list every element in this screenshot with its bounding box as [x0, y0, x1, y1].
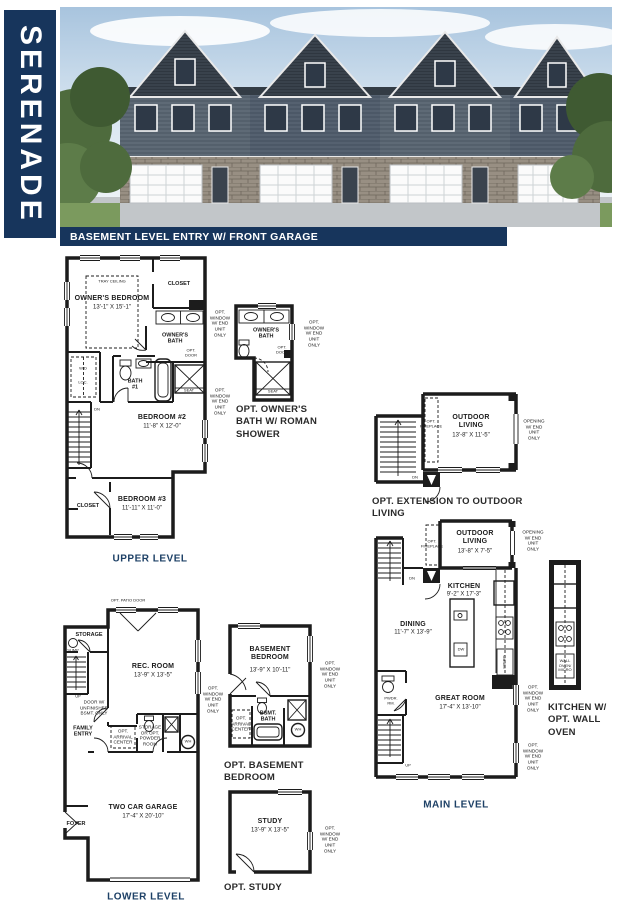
stairs-dn-label: DN	[412, 476, 418, 481]
opt-window-note: OPT. WINDOW W/ END UNIT ONLY	[523, 743, 544, 772]
opt-window-note: OPT. WINDOW W/ END UNIT ONLY	[318, 661, 342, 690]
opt-fireplace-note: OPT. FIREPLACE	[420, 419, 442, 428]
opt-fireplace-outline	[425, 398, 438, 462]
opening-note: OPENING W/ END UNIT ONLY	[522, 530, 543, 553]
rec-room-dims: 13'-9" X 13'-5"	[134, 673, 172, 680]
lower-level-plan: OPT. PATIO DOOR STORAGE SUMP REC. ROOM 1…	[58, 596, 236, 906]
owners-bedroom-dims: 13'-1" X 15'-1"	[93, 305, 131, 312]
opt-door-note: OPT. DOOR	[276, 345, 288, 354]
stairs-down	[380, 420, 416, 476]
powder-room-label: PWDR. RM.	[384, 696, 397, 705]
dining-label: DINING	[400, 621, 426, 629]
lower-level-caption: LOWER LEVEL	[107, 891, 185, 903]
study-label: STUDY	[258, 818, 283, 826]
closet-label: CLOSET	[168, 281, 190, 287]
dishwasher-label: DW	[458, 648, 465, 653]
sump-pump	[69, 639, 78, 648]
powder-toilet	[382, 676, 394, 693]
bedroom2-dims: 11'-8" X 12'-0"	[143, 424, 180, 431]
stairs-up-label: UP	[405, 764, 411, 769]
opt-basement-bedroom-drawing	[222, 618, 354, 780]
stairs-down	[378, 541, 401, 581]
opt-basement-bedroom-plan: BASEMENT BEDROOM 13'-9" X 10'-11" BSMT. …	[222, 618, 354, 780]
vanity	[239, 310, 289, 323]
exterior-rendering	[60, 7, 612, 227]
upper-level-caption: UPPER LEVEL	[113, 553, 188, 565]
plan-title: SERENADE	[13, 25, 47, 224]
bath1-tub	[155, 359, 171, 401]
wall-oven-label: WALL OVEN/ MICRO	[558, 659, 571, 673]
washer-dryer-label: W/D	[79, 367, 87, 372]
storage-powder-note: STORAGE OR OPT. POWDER ROOM	[139, 725, 161, 748]
closet-bedroom3-label: CLOSET	[77, 503, 99, 509]
elevation-banner-label: BASEMENT LEVEL ENTRY W/ FRONT GARAGE	[70, 231, 318, 243]
main-level-plan: OUTDOOR LIVING 13'-8" X 7'-5" OPT. FIREP…	[368, 513, 554, 815]
opt-fireplace-note: OPT. FIREPLACE	[421, 539, 443, 548]
unfinished-bsmt-door-note: DOOR W/ UNFINISHED BSMT. ONLY	[80, 699, 108, 716]
main-level-caption: MAIN LEVEL	[423, 799, 489, 811]
opt-window-note: OPT. WINDOW W/ END UNIT ONLY	[304, 320, 324, 349]
owners-bedroom-label: OWNER'S BEDROOM	[75, 295, 150, 303]
dining-dims: 11'-7" X 13'-9"	[394, 630, 431, 637]
kitchen-island	[450, 599, 474, 667]
opt-arrival-center-note: OPT. ARRIVAL CENTER	[231, 715, 250, 732]
opt-study-caption: OPT. STUDY	[224, 882, 282, 894]
opt-owners-bath-caption: OPT. OWNER'S BATH W/ ROMAN SHOWER	[236, 404, 317, 441]
outdoor-living-label: OUTDOOR LIVING	[456, 530, 493, 546]
bedroom2-label: BEDROOM #2	[138, 414, 186, 422]
toilet	[239, 340, 249, 358]
opt-study-plan: STUDY 13'-9" X 13'-5" OPT. WINDOW W/ END…	[222, 784, 354, 910]
great-room-label: GREAT ROOM	[435, 695, 485, 703]
stairs-up	[378, 719, 401, 757]
stairs-dn-label: DN	[94, 408, 100, 413]
bath1-sink	[136, 359, 151, 368]
bath1-toilet	[120, 360, 131, 380]
opening-note: OPENING W/ END UNIT ONLY	[523, 419, 544, 442]
opt-owners-bath-plan: OWNER'S BATH OPT. DOOR SEAT OPT. WINDOW …	[228, 300, 332, 456]
lower-level-drawing	[58, 596, 236, 906]
storage-label: STORAGE	[75, 632, 102, 638]
bedroom3-dims: 11'-11" X 11'-0"	[122, 506, 162, 513]
kitchen-label: KITCHEN	[448, 583, 481, 591]
bath1-label: BATH #1	[128, 379, 143, 392]
stairs-up	[67, 656, 86, 690]
shower	[165, 717, 178, 732]
basement-bedroom-dims: 13'-9" X 10'-11"	[250, 668, 291, 675]
owners-bath-label: OWNER'S BATH	[162, 333, 188, 346]
microwave-label: MICRO	[503, 655, 508, 668]
townhome-illustration	[60, 7, 612, 227]
opt-wall-oven-caption: KITCHEN W/ OPT. WALL OVEN	[548, 702, 606, 739]
rec-room-label: REC. ROOM	[132, 663, 174, 671]
outdoor-living-dims: 13'-8" X 11'-5"	[452, 433, 489, 440]
wd-loc-label: LOC.	[78, 381, 87, 386]
stairs-down	[67, 410, 91, 465]
water-heater-label: WH	[295, 728, 302, 733]
upper-level-plan: TRAY CEILING OWNER'S BEDROOM 13'-1" X 15…	[58, 252, 236, 568]
sump-label: SUMP	[67, 649, 79, 654]
opt-door-note: OPT. DOOR	[185, 348, 197, 357]
foyer-label: FOYER	[67, 821, 86, 827]
tub	[254, 724, 282, 740]
outdoor-living-dims: 13'-8" X 7'-5"	[458, 549, 493, 556]
opt-arrival-center-note: OPT. ARRIVAL CENTER	[113, 728, 132, 745]
garage-label: TWO CAR GARAGE	[109, 804, 178, 812]
opt-window-note: OPT. WINDOW W/ END UNIT ONLY	[318, 826, 342, 855]
owners-bath-vanity	[156, 311, 203, 324]
bedroom3-label: BEDROOM #3	[118, 496, 166, 504]
study-dims: 13'-9" X 13'-5"	[251, 828, 289, 835]
brochure-page: SERENADE	[0, 0, 622, 910]
opt-wall-oven-plan: WALL OVEN/ MICRO KITCHEN W/ OPT. WALL OV…	[545, 560, 620, 750]
seat-label: SEAT	[184, 389, 194, 394]
tray-ceiling-label: TRAY CEILING	[98, 280, 125, 285]
outdoor-living-label: OUTDOOR LIVING	[452, 414, 489, 430]
elevation-banner: BASEMENT LEVEL ENTRY W/ FRONT GARAGE	[60, 227, 507, 246]
seat-label: SEAT	[268, 390, 278, 395]
tray-ceiling-outline	[86, 276, 138, 348]
opt-window-note: OPT. WINDOW W/ END UNIT ONLY	[523, 685, 544, 714]
stairs-up-label: UP	[75, 695, 81, 700]
opt-patio-door-note: OPT. PATIO DOOR	[111, 599, 146, 604]
bsmt-bath-label: BSMT. BATH	[260, 711, 277, 724]
stairs-dn-label: DN	[409, 577, 415, 582]
opt-basement-bedroom-caption: OPT. BASEMENT BEDROOM	[224, 760, 354, 785]
garage-dims: 17'-4" X 20'-10"	[122, 814, 163, 821]
kitchen-dims: 9'-2" X 17'-3"	[447, 592, 482, 599]
great-room-dims: 17'-4" X 13'-10"	[439, 705, 480, 712]
basement-bedroom-label: BASEMENT BEDROOM	[250, 646, 291, 662]
water-heater-label: WH	[185, 740, 192, 745]
family-entry-label: FAMILY ENTRY	[73, 726, 93, 739]
shower	[288, 700, 306, 720]
plan-name-bar: SERENADE	[4, 10, 56, 238]
owners-bath-label: OWNER'S BATH	[253, 328, 279, 341]
opt-outdoor-extension-plan: OUTDOOR LIVING 13'-8" X 11'-5" OPT. FIRE…	[368, 386, 554, 520]
